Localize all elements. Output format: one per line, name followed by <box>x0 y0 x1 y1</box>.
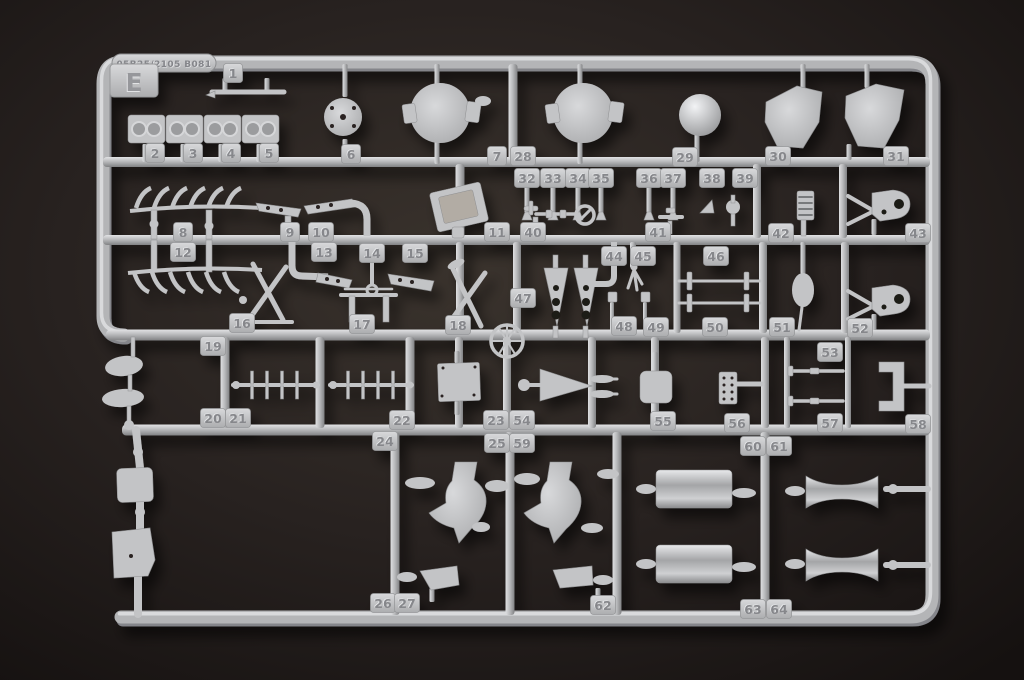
part-shape <box>656 470 732 508</box>
part-number-tag-60: 6060 <box>741 437 766 456</box>
svg-text:21: 21 <box>229 411 246 426</box>
part-number-tag-7: 77 <box>488 147 507 166</box>
part-shape <box>723 398 726 401</box>
part-shape <box>133 447 143 457</box>
part-shape <box>731 214 735 226</box>
part-shape <box>485 480 509 492</box>
part-number-tag-55: 5555 <box>651 412 676 431</box>
part-shape <box>239 296 247 304</box>
svg-text:62: 62 <box>594 598 611 613</box>
svg-text:25: 25 <box>488 436 505 451</box>
sprue-photo: 1122334455667728282929303031313232333334… <box>0 0 1024 680</box>
part-shape <box>888 484 898 494</box>
part-shape <box>785 486 805 496</box>
part-shape <box>132 122 146 136</box>
part-number-tag-2: 22 <box>146 144 165 163</box>
part-number-tag-29: 2929 <box>673 148 698 167</box>
part-shape <box>590 390 614 398</box>
part-number-tag-28: 2828 <box>511 147 536 166</box>
part-number-tag-19: 1919 <box>201 337 226 356</box>
part-number-tag-11: 1111 <box>485 223 510 242</box>
part-shape <box>472 522 490 532</box>
svg-text:28: 28 <box>514 149 531 164</box>
part-shape <box>723 391 726 394</box>
svg-text:31: 31 <box>887 149 904 164</box>
part-number-tag-12: 1212 <box>171 243 196 262</box>
svg-text:10: 10 <box>312 225 330 240</box>
part-number-tag-6: 66 <box>342 145 361 164</box>
svg-text:59: 59 <box>513 436 530 451</box>
part-shape <box>552 298 560 306</box>
svg-text:42: 42 <box>772 226 789 241</box>
part-number-tag-47: 4747 <box>511 289 536 308</box>
part-number-tag-46: 4646 <box>704 247 729 266</box>
part-shape <box>377 371 380 384</box>
part-shape <box>732 562 756 572</box>
part-shape <box>810 398 819 404</box>
part-shape <box>788 396 793 406</box>
part-shape <box>581 523 603 533</box>
svg-text:64: 64 <box>770 602 788 617</box>
part-shape <box>582 298 590 306</box>
svg-text:23: 23 <box>487 413 504 428</box>
part-number-tag-52: 5252 <box>848 319 873 338</box>
part-number-tag-16: 1616 <box>230 314 255 333</box>
part-shape <box>151 240 157 270</box>
svg-text:4: 4 <box>227 146 236 161</box>
svg-text:44: 44 <box>605 249 623 264</box>
part-number-tag-41: 4141 <box>646 223 671 242</box>
part-number-tag-57: 5757 <box>818 414 843 433</box>
part-shape <box>590 375 614 383</box>
svg-text:20: 20 <box>204 411 222 426</box>
part-number-tag-23: 2323 <box>484 411 509 430</box>
part-shape <box>640 371 672 403</box>
svg-text:9: 9 <box>286 225 295 240</box>
part-shape <box>731 195 735 203</box>
part-shape <box>261 122 275 136</box>
part-shape <box>597 469 619 479</box>
part-shape <box>553 255 558 268</box>
part-shape <box>397 572 417 582</box>
part-shape <box>347 386 350 399</box>
svg-text:22: 22 <box>393 413 410 428</box>
part-number-tag-35: 3535 <box>589 169 614 188</box>
part-shape <box>251 371 254 384</box>
part-shape <box>223 122 237 136</box>
part-shape <box>383 296 389 322</box>
part-number-tag-24: 2424 <box>373 432 398 451</box>
part-shape <box>731 391 734 394</box>
part-number-tag-13: 1313 <box>312 243 337 262</box>
part-shape <box>232 381 240 389</box>
part-shape <box>208 122 222 136</box>
part-shape <box>882 305 887 310</box>
part-number-tag-39: 3939 <box>733 169 758 188</box>
part-shape <box>731 398 734 401</box>
sprue-letter: E <box>125 68 142 97</box>
part-number-tag-59: 5959 <box>510 434 535 453</box>
svg-text:36: 36 <box>640 171 658 186</box>
part-number-tag-1: 11 <box>224 64 243 83</box>
part-shape <box>744 272 749 290</box>
part-shape <box>552 311 561 320</box>
svg-text:24: 24 <box>376 434 394 449</box>
part-shape <box>810 368 819 374</box>
svg-text:63: 63 <box>744 602 761 617</box>
part-shape <box>894 294 904 304</box>
part-shape <box>636 559 656 569</box>
part-shape <box>150 220 159 229</box>
part-shape <box>362 371 365 384</box>
part-shape <box>336 279 340 283</box>
part-number-tag-21: 2121 <box>226 409 251 428</box>
part-number-tag-43: 4343 <box>906 224 931 243</box>
part-shape <box>679 94 721 136</box>
part-shape <box>801 220 806 236</box>
svg-text:55: 55 <box>654 414 671 429</box>
part-number-tag-3: 33 <box>184 144 203 163</box>
svg-text:51: 51 <box>773 320 790 335</box>
part-shape <box>719 372 737 404</box>
svg-text:45: 45 <box>634 249 651 264</box>
part-shape <box>296 371 299 384</box>
part-shape <box>402 103 418 124</box>
part-number-tag-50: 5050 <box>703 318 728 337</box>
part-shape <box>352 106 356 110</box>
part-shape <box>266 206 270 210</box>
part-shape <box>636 484 656 494</box>
part-shape <box>296 386 299 399</box>
svg-text:53: 53 <box>821 345 838 360</box>
svg-text:15: 15 <box>406 246 423 261</box>
part-shape <box>128 375 132 391</box>
svg-text:2: 2 <box>151 146 160 161</box>
part-shape <box>731 384 734 387</box>
svg-text:61: 61 <box>770 439 787 454</box>
part-shape <box>583 326 588 338</box>
svg-text:37: 37 <box>664 171 681 186</box>
part-shape <box>329 381 337 389</box>
part-shape <box>441 395 444 398</box>
svg-text:46: 46 <box>707 249 725 264</box>
part-number-tag-37: 3737 <box>661 169 686 188</box>
part-shape <box>329 203 333 207</box>
part-number-tag-45: 4545 <box>631 247 656 266</box>
svg-text:13: 13 <box>315 245 332 260</box>
svg-text:57: 57 <box>821 416 838 431</box>
part-shape <box>546 210 552 218</box>
part-shape <box>377 386 380 399</box>
svg-text:27: 27 <box>398 596 415 611</box>
part-shape <box>560 210 566 218</box>
part-shape <box>732 488 756 498</box>
part-number-tag-44: 4444 <box>602 247 627 266</box>
part-shape <box>281 386 284 399</box>
svg-text:54: 54 <box>513 413 531 428</box>
svg-text:41: 41 <box>649 225 666 240</box>
part-number-tag-34: 3434 <box>566 169 591 188</box>
part-shape <box>583 285 589 291</box>
part-shape <box>583 255 588 268</box>
part-number-tag-64: 6464 <box>767 600 792 619</box>
part-number-tag-9: 99 <box>281 223 300 242</box>
part-number-tag-33: 3333 <box>541 169 566 188</box>
svg-text:1: 1 <box>229 66 238 81</box>
part-shape <box>687 294 692 312</box>
part-shape <box>882 210 887 215</box>
part-shape <box>894 199 904 209</box>
part-shape <box>205 222 214 231</box>
part-shape <box>112 528 155 578</box>
part-number-tag-8: 88 <box>174 223 193 242</box>
part-shape <box>514 473 540 485</box>
part-shape <box>608 101 625 123</box>
svg-text:19: 19 <box>204 339 221 354</box>
svg-text:11: 11 <box>488 225 505 240</box>
svg-text:49: 49 <box>647 320 664 335</box>
svg-text:40: 40 <box>524 225 542 240</box>
part-shape <box>888 560 898 570</box>
part-shape <box>687 272 692 290</box>
part-number-tag-17: 1717 <box>350 315 375 334</box>
part-shape <box>251 386 254 399</box>
part-shape <box>788 366 793 376</box>
part-shape <box>529 201 533 215</box>
part-shape <box>410 83 470 143</box>
part-shape <box>785 559 805 569</box>
part-shape <box>127 406 131 422</box>
svg-text:48: 48 <box>615 319 632 334</box>
part-number-tag-26: 2626 <box>371 594 396 613</box>
svg-text:12: 12 <box>174 245 191 260</box>
part-shape <box>281 371 284 384</box>
part-shape <box>266 371 269 384</box>
svg-text:32: 32 <box>518 171 535 186</box>
part-shape <box>723 384 726 387</box>
part-shape <box>553 285 559 291</box>
svg-text:33: 33 <box>544 171 561 186</box>
svg-text:7: 7 <box>493 149 502 164</box>
part-shape <box>340 114 346 120</box>
part-shape <box>553 326 558 338</box>
part-shape <box>410 280 414 284</box>
part-number-tag-56: 5656 <box>725 414 750 433</box>
part-shape <box>407 382 414 389</box>
part-shape <box>641 292 650 302</box>
part-number-tag-25: 2525 <box>485 434 510 453</box>
part-shape <box>347 371 350 384</box>
part-shape <box>147 122 161 136</box>
part-shape <box>744 294 749 312</box>
part-shape <box>474 366 477 369</box>
part-number-tag-20: 2020 <box>201 409 226 428</box>
part-number-tag-10: 1010 <box>309 223 334 242</box>
svg-text:50: 50 <box>706 320 724 335</box>
part-shape <box>116 467 153 502</box>
part-shape <box>392 386 395 399</box>
part-number-tag-42: 4242 <box>769 224 794 243</box>
svg-text:30: 30 <box>769 149 787 164</box>
part-shape <box>135 507 145 517</box>
part-shape <box>731 377 734 380</box>
svg-text:35: 35 <box>592 171 609 186</box>
part-shape <box>656 545 732 583</box>
svg-text:34: 34 <box>569 171 587 186</box>
part-number-tag-61: 6161 <box>767 437 792 456</box>
svg-text:3: 3 <box>189 146 198 161</box>
part-number-tag-53: 5353 <box>818 343 843 362</box>
svg-text:38: 38 <box>703 171 720 186</box>
svg-text:6: 6 <box>347 147 356 162</box>
svg-text:56: 56 <box>728 416 746 431</box>
part-shape <box>792 273 814 307</box>
part-shape <box>131 337 135 357</box>
svg-text:26: 26 <box>374 596 392 611</box>
part-shape <box>405 477 435 489</box>
part-shape <box>666 208 675 213</box>
part-shape <box>330 124 334 128</box>
part-shape <box>325 277 329 281</box>
part-shape <box>553 566 593 588</box>
part-number-tag-40: 4040 <box>521 223 546 242</box>
part-shape <box>723 377 726 380</box>
part-number-tag-48: 4848 <box>612 317 637 336</box>
part-number-tag-15: 1515 <box>403 244 428 263</box>
part-number-tag-31: 3131 <box>884 147 909 166</box>
part-shape <box>545 103 561 124</box>
svg-text:18: 18 <box>449 318 466 333</box>
svg-text:43: 43 <box>909 226 926 241</box>
part-number-tag-32: 3232 <box>515 169 540 188</box>
part-number-tag-14: 1414 <box>360 244 385 263</box>
part-shape <box>246 122 260 136</box>
part-number-tag-49: 4949 <box>644 318 669 337</box>
part-number-tag-51: 5151 <box>770 318 795 337</box>
svg-text:16: 16 <box>233 316 251 331</box>
part-number-tag-63: 6363 <box>741 600 766 619</box>
part-shape <box>185 122 199 136</box>
svg-text:14: 14 <box>363 246 381 261</box>
svg-text:39: 39 <box>736 171 753 186</box>
part-shape <box>582 311 591 320</box>
part-shape <box>553 83 613 143</box>
part-number-tag-36: 3636 <box>637 169 662 188</box>
part-shape <box>392 371 395 384</box>
part-shape <box>129 554 133 558</box>
part-number-tag-18: 1818 <box>446 316 471 335</box>
part-shape <box>398 278 402 282</box>
model-kit-sprue-image: 1122334455667728282929303031313232333334… <box>0 0 1024 680</box>
part-shape <box>475 96 491 106</box>
part-shape <box>330 106 334 110</box>
svg-text:60: 60 <box>744 439 762 454</box>
part-shape <box>266 386 269 399</box>
part-number-tag-58: 5858 <box>906 415 931 434</box>
svg-text:8: 8 <box>179 225 188 240</box>
svg-text:58: 58 <box>909 417 926 432</box>
part-number-tag-4: 44 <box>222 144 241 163</box>
part-shape <box>352 124 356 128</box>
part-shape <box>452 227 464 238</box>
part-number-tag-62: 6262 <box>591 596 616 615</box>
svg-text:47: 47 <box>514 291 531 306</box>
part-number-tag-38: 3838 <box>700 169 725 188</box>
svg-text:29: 29 <box>676 150 693 165</box>
part-shape <box>313 382 320 389</box>
svg-text:17: 17 <box>353 317 370 332</box>
part-shape <box>362 386 365 399</box>
part-number-tag-54: 5454 <box>510 411 535 430</box>
part-number-tag-30: 3030 <box>766 147 791 166</box>
part-number-tag-5: 55 <box>260 144 279 163</box>
part-number-tag-27: 2727 <box>395 594 420 613</box>
part-shape <box>442 367 445 370</box>
svg-text:52: 52 <box>851 321 868 336</box>
part-number-tag-22: 2222 <box>390 411 415 430</box>
part-shape <box>316 205 320 209</box>
svg-text:5: 5 <box>265 146 274 161</box>
part-shape <box>593 575 613 585</box>
part-shape <box>170 122 184 136</box>
part-shape <box>473 394 476 397</box>
part-shape <box>608 292 617 302</box>
part-shape <box>279 208 283 212</box>
